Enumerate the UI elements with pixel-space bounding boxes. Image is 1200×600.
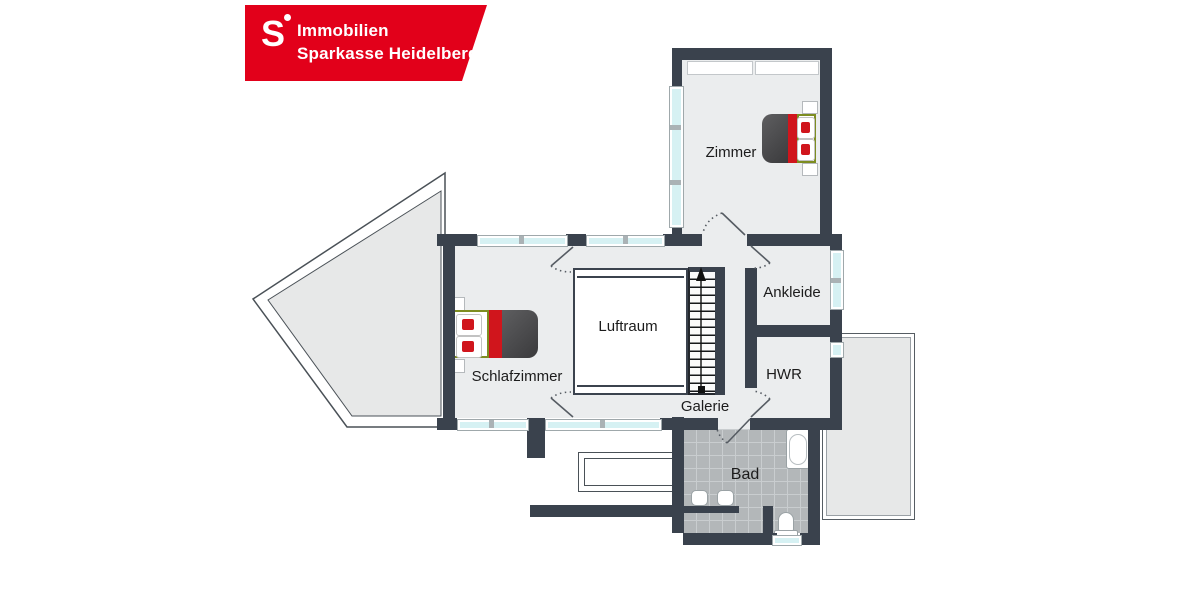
wall-segment — [747, 234, 842, 246]
partition-wall — [763, 506, 773, 533]
wall-segment — [750, 418, 842, 430]
toilet — [778, 512, 794, 532]
window-mullion — [623, 236, 628, 244]
sink — [691, 490, 708, 506]
floor-hwr-doorway — [745, 388, 757, 418]
vanity-counter — [683, 506, 739, 513]
floor-bad-doorway — [718, 418, 750, 429]
wall-segment — [830, 308, 842, 342]
sparkasse-s-dot-icon — [284, 14, 291, 21]
void-skylight-inner — [584, 458, 674, 486]
wall-segment — [683, 533, 777, 545]
window — [830, 342, 844, 358]
room-label-luftraum: Luftraum — [580, 318, 676, 335]
brand-line1: Immobilien — [297, 21, 389, 41]
wall-segment — [527, 418, 545, 458]
window-mullion — [489, 420, 494, 428]
bed-pillow-accent — [801, 144, 810, 155]
window-mullion — [670, 180, 681, 185]
closet — [755, 61, 819, 75]
wall-segment — [530, 505, 672, 517]
nightstand — [802, 101, 818, 114]
wall-segment — [660, 418, 718, 430]
room-label-bad: Bad — [715, 466, 775, 484]
bed-pillow-accent — [801, 122, 810, 133]
wall-segment — [443, 246, 455, 430]
wall-segment — [672, 60, 682, 86]
room-label-hwr: HWR — [759, 366, 809, 383]
wall-segment — [715, 267, 725, 395]
floor-zimmer-doorway — [702, 234, 747, 246]
wall-segment — [437, 418, 457, 430]
room-label-zimmer: Zimmer — [695, 144, 767, 161]
bed-red-stripe — [489, 310, 502, 358]
room-label-ankleide: Ankleide — [757, 284, 827, 301]
wall-segment — [745, 325, 832, 337]
bed-pillow-accent — [462, 341, 474, 352]
window — [669, 86, 684, 228]
wall-segment — [437, 234, 477, 246]
nightstand — [802, 163, 818, 176]
railing-line — [577, 385, 684, 387]
brand-line2: Sparkasse Heidelberg — [297, 44, 479, 64]
wall-segment — [820, 48, 832, 234]
wall-segment — [830, 356, 842, 430]
floorplan-canvas: S Immobilien Sparkasse Heidelberg — [0, 0, 1200, 600]
wall-segment — [566, 234, 586, 246]
wall-segment — [663, 234, 702, 246]
wall-segment — [672, 48, 832, 60]
sparkasse-s-icon: S — [261, 16, 285, 52]
window-mullion — [600, 420, 605, 428]
staircase — [688, 267, 715, 395]
wall-segment — [808, 429, 820, 533]
sink — [717, 490, 734, 506]
window-mullion — [831, 278, 841, 283]
wall-segment — [800, 533, 820, 545]
window-mullion — [670, 125, 681, 130]
floor-ankleide-doorway — [745, 246, 757, 268]
bed-blanket — [502, 310, 538, 358]
railing-line — [577, 276, 684, 278]
closet — [687, 61, 753, 75]
window-mullion — [519, 236, 524, 244]
wall-segment — [672, 417, 684, 533]
room-label-galerie: Galerie — [677, 398, 733, 415]
room-label-schlafzimmer: Schlafzimmer — [467, 368, 567, 385]
window — [772, 535, 802, 546]
bed-pillow-accent — [462, 319, 474, 330]
bathtub-basin — [789, 434, 807, 465]
